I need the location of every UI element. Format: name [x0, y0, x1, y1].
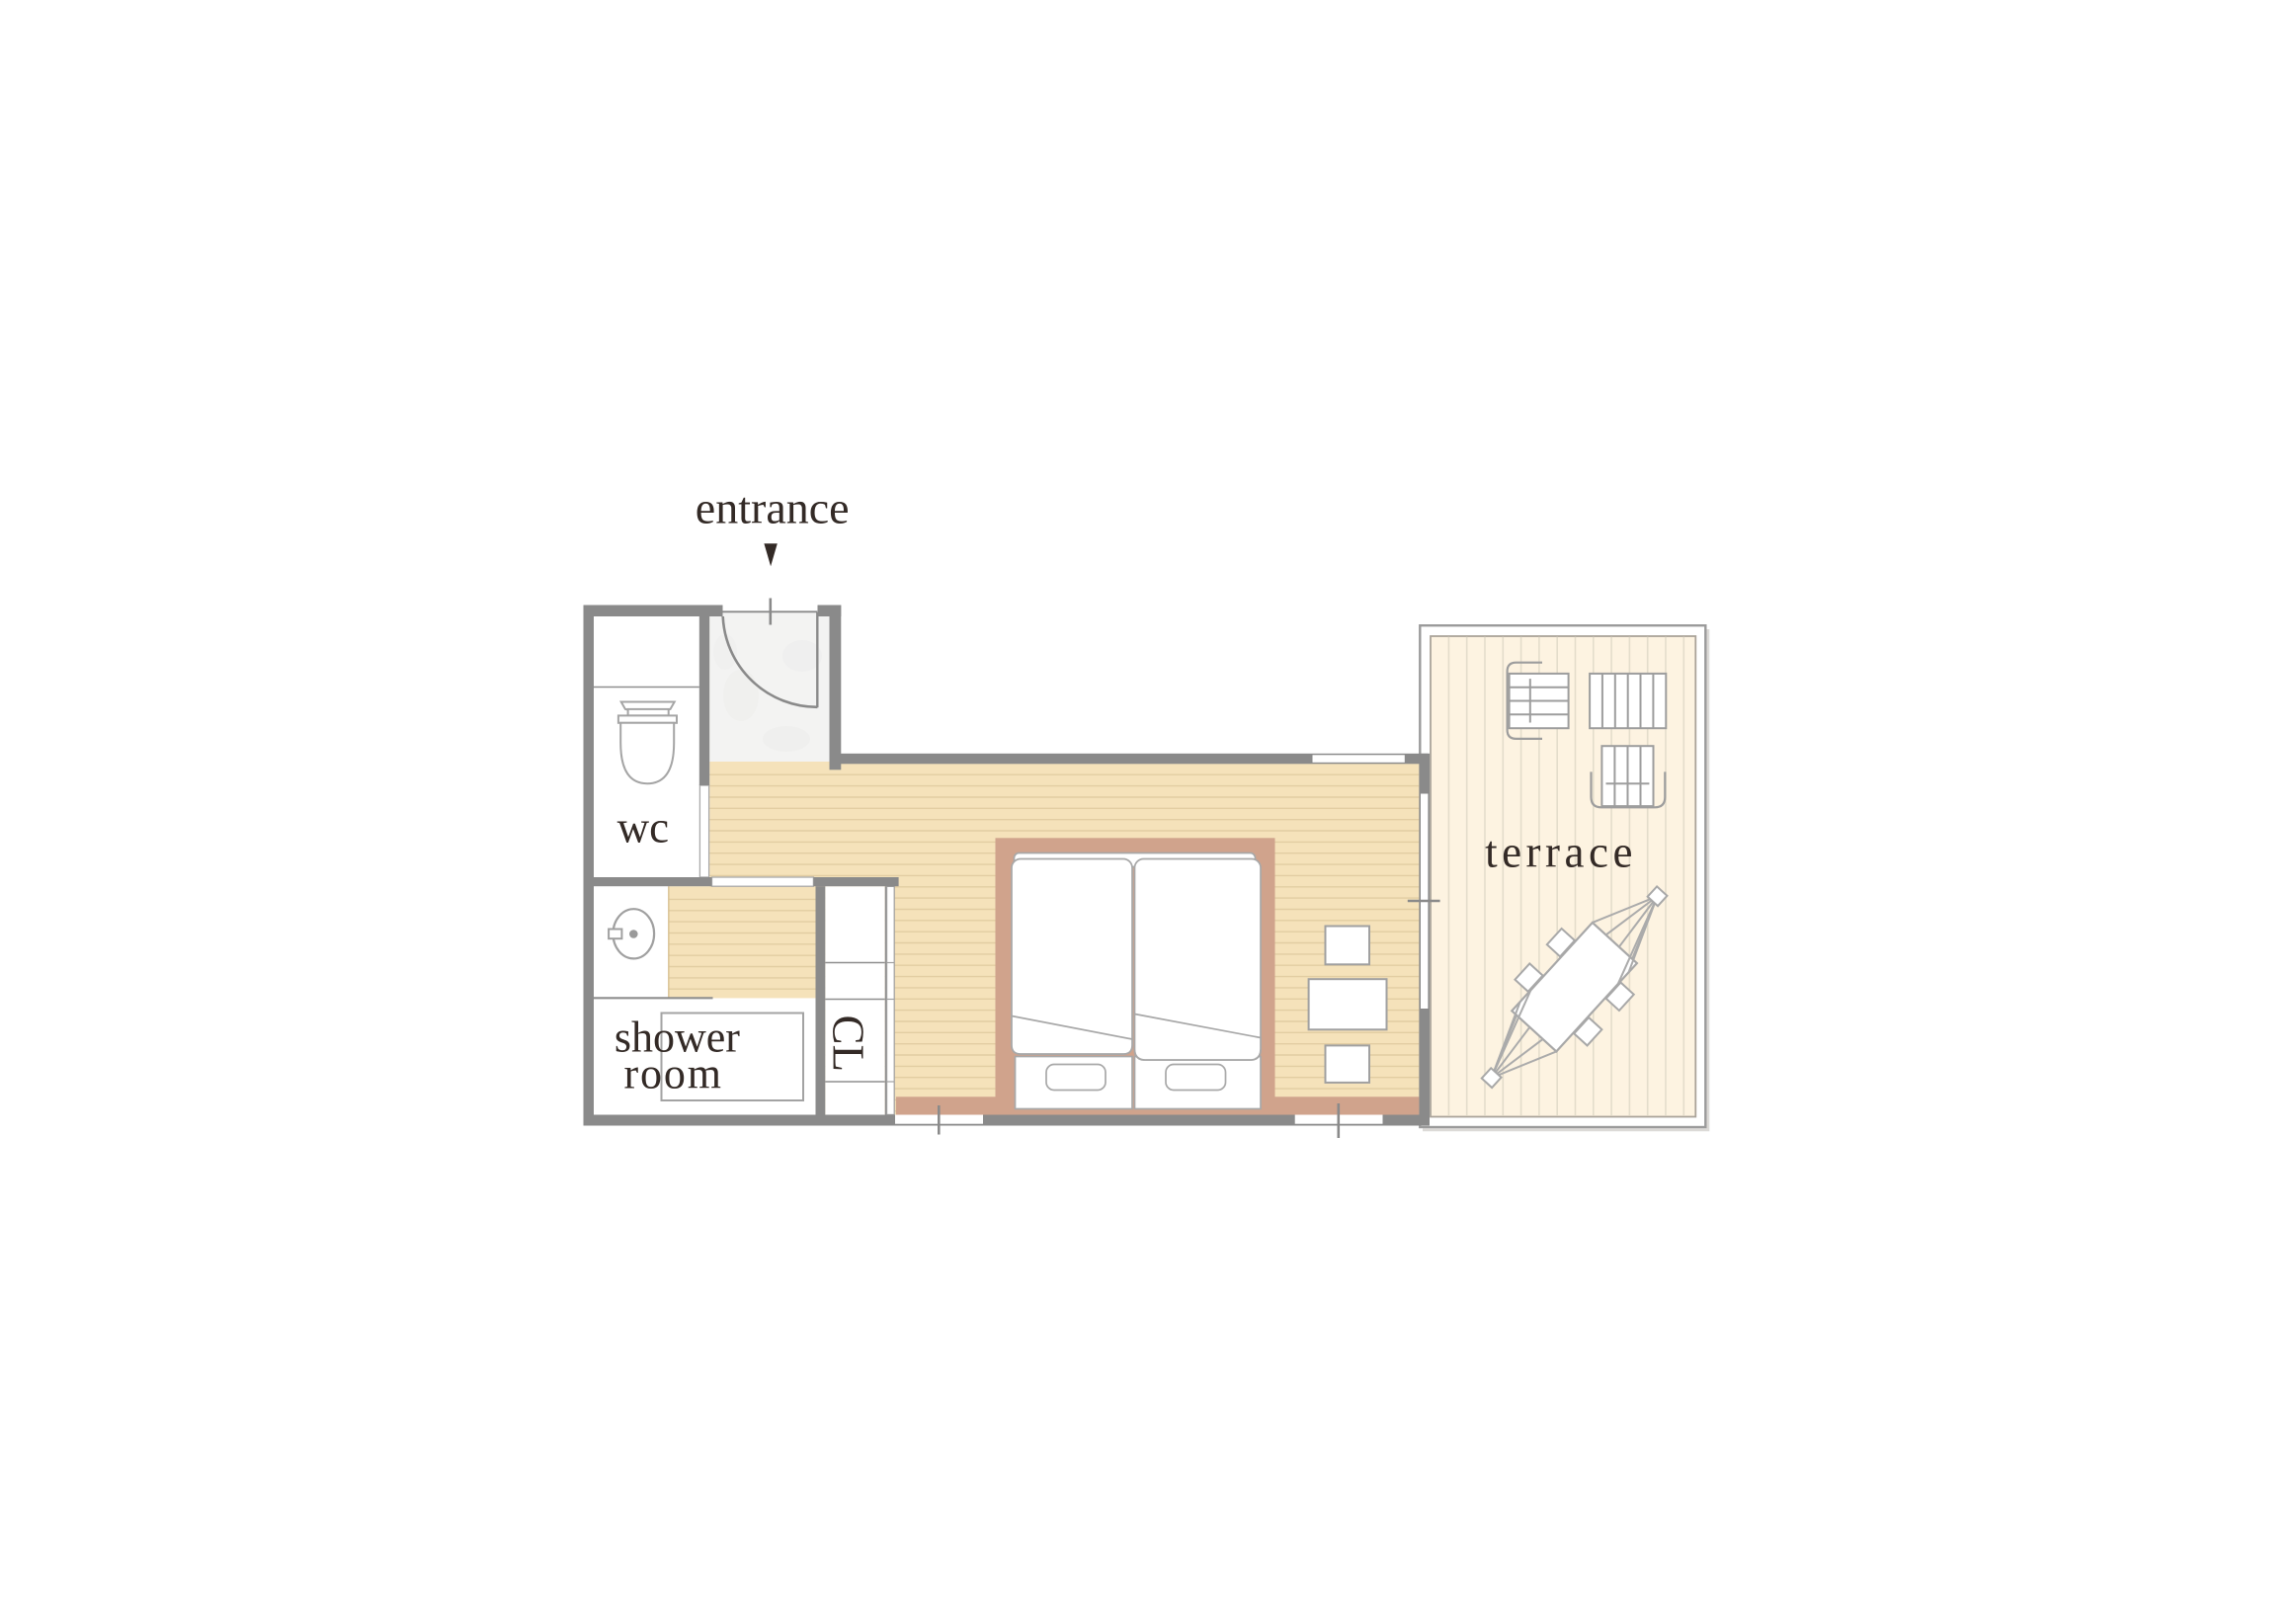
- svg-text:wc: wc: [617, 802, 669, 852]
- svg-text:room: room: [623, 1050, 722, 1098]
- svg-text:terrace: terrace: [1485, 828, 1637, 877]
- svg-text:entrance: entrance: [696, 483, 850, 533]
- svg-text:CL: CL: [824, 1015, 873, 1073]
